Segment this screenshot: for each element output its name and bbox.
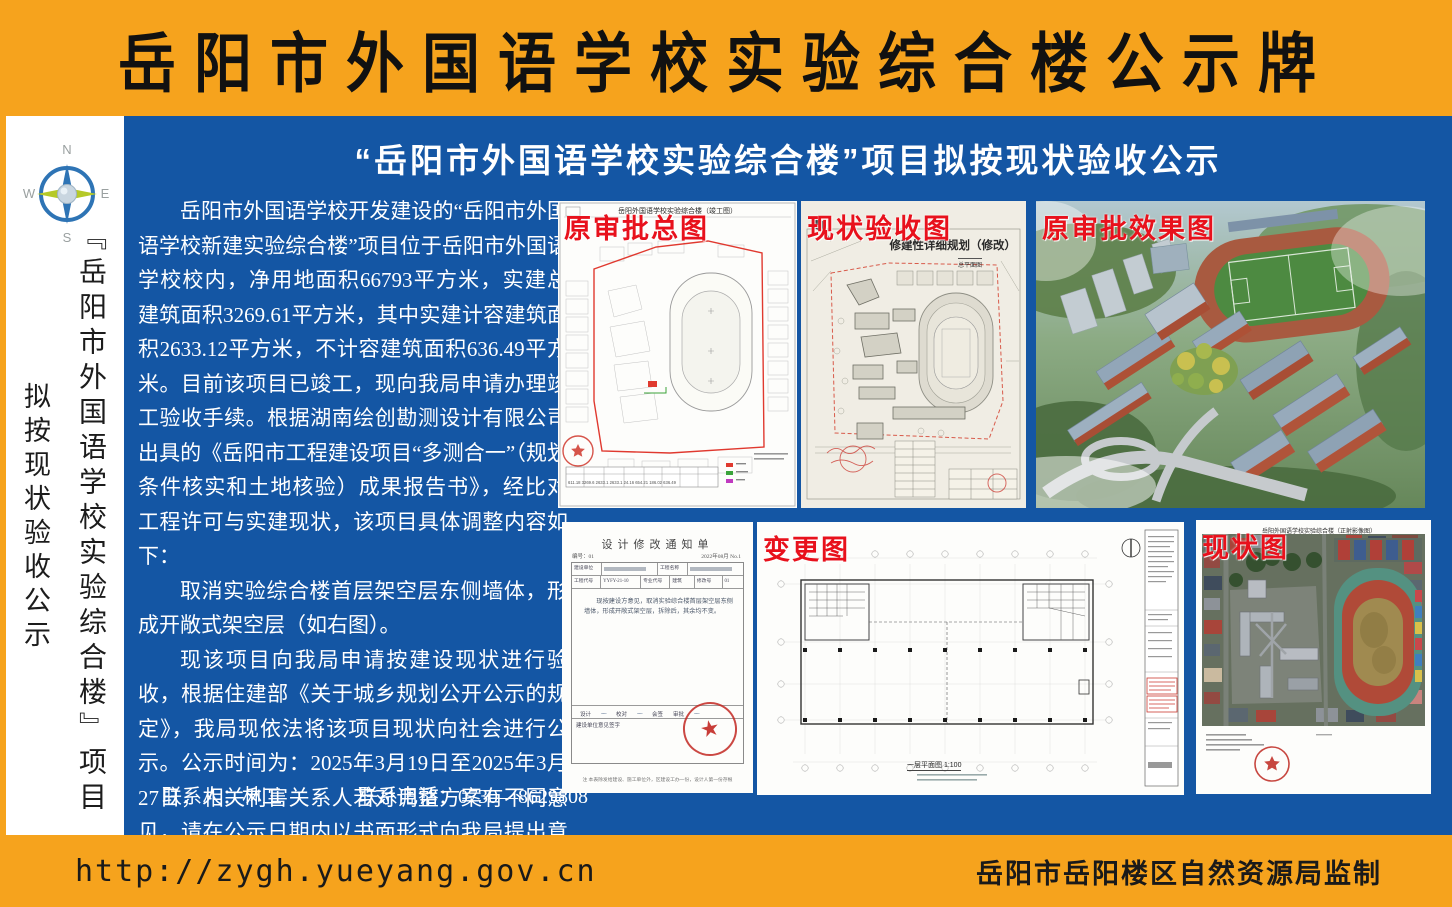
sidebar-project-title: 『岳阳市外国语学校实验综合楼』项目 xyxy=(70,222,110,817)
drawing-subtitle: 总平面图 xyxy=(958,258,982,269)
compass-west-label: W xyxy=(23,186,36,201)
panel-approved-site-plan: 611.18 3269.6 2633.1 2633.1 24.16 654.21… xyxy=(558,201,797,508)
document-body-text: 现按建设方意见，取消实验综合楼首层架空层东侧墙体，形成开敞式架空层，拆除后，其余… xyxy=(584,597,733,616)
sidebar-status-title: 拟按现状验收公示 xyxy=(16,382,55,654)
label-acceptance-plan: 现状验收图 xyxy=(807,207,952,246)
title-block xyxy=(949,469,1017,499)
parking-rows xyxy=(897,271,993,285)
document-title: 设计修改通知单 xyxy=(562,536,753,552)
table-numbers: 611.18 3269.6 2633.1 2633.1 24.16 654.21… xyxy=(568,480,677,485)
running-track xyxy=(1334,568,1422,716)
plan-caption: 一层平面图 1:100 xyxy=(907,760,961,771)
site-plan-drawing: 611.18 3269.6 2633.1 2633.1 24.16 654.21… xyxy=(558,201,797,508)
panel-approved-rendering: 原审批效果图 xyxy=(1036,201,1425,508)
spec-table xyxy=(895,441,935,497)
notice-paragraph-2: 取消实验综合楼首层架空层东侧墙体，形成开敞式架空层（如右图）。 xyxy=(138,574,568,643)
issuing-authority: 岳阳市岳阳楼区自然资源局监制 xyxy=(976,852,1382,891)
compass-north-label: N xyxy=(62,142,71,157)
document-number: 编号：01 xyxy=(572,552,594,560)
document-footnote: 注 本表除发给建设、施工单位外，区建设工办一份，设计人第一份存根 xyxy=(562,776,753,783)
label-approved-rendering: 原审批效果图 xyxy=(1042,207,1216,246)
public-notice-board: 岳阳市外国语学校实验综合楼公示牌 N W E S 『岳阳市外国语学校实验综合楼』… xyxy=(0,0,1452,907)
title-block-column xyxy=(1145,530,1178,786)
document-date: 2022年08月 No.1 xyxy=(701,552,741,560)
panel-acceptance-plan: 修建性详细规划（修改） 总平面图 现状验收图 xyxy=(801,201,1026,508)
poster-title: 岳阳市外国语学校实验综合楼公示牌 xyxy=(118,11,1334,105)
poster-header: 岳阳市外国语学校实验综合楼公示牌 xyxy=(0,0,1452,116)
panel-change-plan: 一层平面图 1:100 变更图 xyxy=(757,522,1184,795)
panel-status-photo: 岳阳外国语学校实验综合楼（正射影像图） 现状图 xyxy=(1196,520,1431,794)
school-campus xyxy=(1230,580,1322,704)
notice-paragraph-1: 岳阳市外国语学校开发建设的“岳阳市外国语学校新建实验综合楼”项目位于岳阳市外国语… xyxy=(138,194,568,574)
running-track-shape xyxy=(919,293,993,413)
panel-change-notice: 设计修改通知单 编号：01 2022年08月 No.1 建设单位 工程名称 工程… xyxy=(562,522,753,793)
label-status-photo: 现状图 xyxy=(1202,526,1289,565)
website-url: http://zygh.yueyang.gov.cn xyxy=(75,854,597,889)
contact-phone: 联系电话：0730—8629808 xyxy=(358,780,588,809)
aerial-rendering xyxy=(1036,201,1425,508)
running-track-shape xyxy=(670,273,752,411)
notice-title: “岳阳市外国语学校实验综合楼”项目拟按现状验收公示 xyxy=(124,134,1452,182)
form-row-1: 建设单位 工程名称 xyxy=(572,563,743,576)
sidebar: N W E S 『岳阳市外国语学校实验综合楼』项目 拟按现状验收公示 xyxy=(6,116,124,835)
compass-east-label: E xyxy=(101,186,110,201)
change-notice-document: 设计修改通知单 编号：01 2022年08月 No.1 建设单位 工程名称 工程… xyxy=(562,522,753,793)
summary-table: 611.18 3269.6 2633.1 2633.1 24.16 654.21… xyxy=(566,467,718,487)
form-row-2: 工程代号 YYFY-21-10 专业代号 建筑 修改号 01 xyxy=(572,576,743,589)
label-change-plan: 变更图 xyxy=(763,528,850,567)
top-courts xyxy=(1334,538,1422,562)
main-board: “岳阳市外国语学校实验综合楼”项目拟按现状验收公示 岳阳市外国语学校开发建设的“… xyxy=(124,116,1452,835)
poster-footer: http://zygh.yueyang.gov.cn 岳阳市岳阳楼区自然资源局监… xyxy=(0,835,1452,907)
contact-person: 联系人：林工 xyxy=(162,780,282,809)
label-approved-site-plan: 原审批总图 xyxy=(564,207,709,246)
